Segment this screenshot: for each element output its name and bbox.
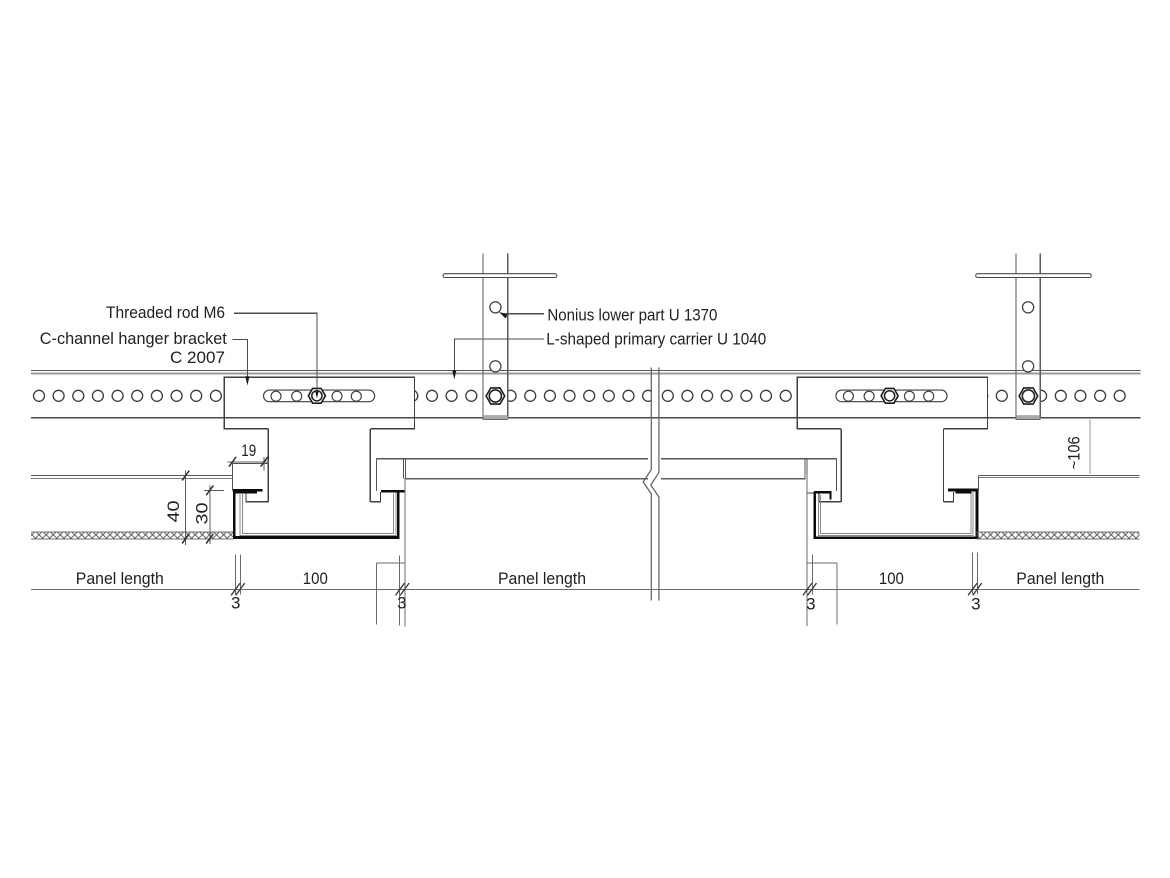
svg-text:3: 3 (971, 595, 980, 614)
svg-text:100: 100 (303, 569, 328, 588)
svg-text:Panel length: Panel length (76, 569, 164, 588)
svg-text:~106: ~106 (1065, 436, 1084, 469)
svg-text:100: 100 (879, 569, 904, 588)
svg-text:40: 40 (164, 501, 183, 523)
svg-text:3: 3 (806, 595, 815, 614)
svg-text:L-shaped primary carrier U 104: L-shaped primary carrier U 1040 (546, 330, 766, 349)
svg-text:3: 3 (231, 594, 240, 613)
svg-text:Nonius lower part U 1370: Nonius lower part U 1370 (547, 306, 717, 325)
svg-text:3: 3 (397, 594, 406, 613)
svg-text:Panel length: Panel length (1016, 569, 1104, 588)
svg-text:Panel length: Panel length (498, 569, 586, 588)
svg-text:Threaded rod M6: Threaded rod M6 (106, 303, 225, 322)
svg-text:C-channel hanger bracket: C-channel hanger bracket (40, 329, 227, 348)
svg-text:C 2007: C 2007 (170, 348, 225, 367)
svg-text:30: 30 (193, 503, 212, 525)
svg-text:19: 19 (241, 441, 256, 460)
